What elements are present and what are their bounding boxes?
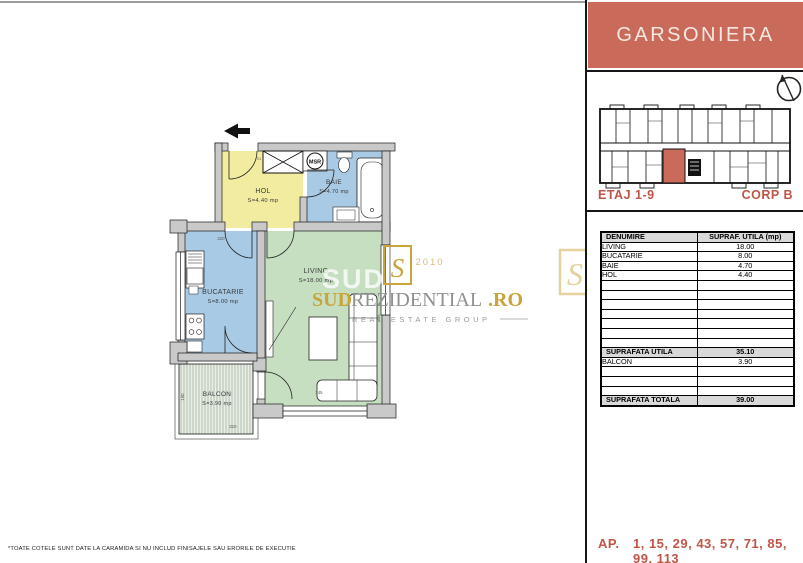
row-bucatarie-name: BUCATARIE: [601, 252, 697, 262]
entrance-arrow-icon: [224, 124, 250, 139]
col-header-denumire: DENUMIRE: [601, 232, 697, 242]
row-hol-value: 4.40: [697, 271, 794, 281]
boiler: [187, 341, 202, 352]
dim-shaft: 21: [257, 157, 261, 161]
balcon-area: S=3.90 mp: [202, 401, 231, 407]
watermark-year: 2010: [415, 257, 444, 268]
floor-label: ETAJ 1-9: [598, 188, 655, 202]
bucatarie-area: S=8.00 mp: [208, 299, 239, 305]
empty-row: [601, 367, 794, 377]
rule-under-title: [585, 70, 803, 72]
table-header-row: DENUMIRE SUPRAF. UTILA (mp): [601, 232, 794, 242]
row-baie-name: BAIE: [601, 261, 697, 271]
empty-row: [601, 300, 794, 310]
table-row: LIVING 18.00: [601, 242, 794, 252]
compass-icon: [772, 70, 803, 104]
footnote: *TOATE COTELE SUNT DATE LA CARAMIDA SI N…: [8, 546, 296, 552]
subtotal-value: 35.10: [697, 348, 794, 358]
dim-living-width: 345: [315, 390, 323, 395]
stairwell: [688, 159, 701, 176]
empty-row: [601, 290, 794, 300]
table-row: BUCATARIE 8.00: [601, 252, 794, 262]
dim-kitchen-width: 220: [217, 236, 225, 241]
dim-balcony-width: 210: [229, 424, 237, 429]
msr-label: MSR: [309, 160, 321, 166]
brand-tagline: REAL ESTATE GROUP: [352, 315, 491, 324]
empty-row: [601, 280, 794, 290]
row-bucatarie-value: 8.00: [697, 252, 794, 262]
corp-label: CORP B: [700, 188, 793, 202]
watermark-emblem-letter: S: [391, 253, 405, 283]
row-balcon-value: 3.90: [697, 357, 794, 367]
area-table: DENUMIRE SUPRAF. UTILA (mp) LIVING 18.00…: [600, 231, 795, 407]
row-baie-value: 4.70: [697, 261, 794, 271]
baie-label: BAIE: [326, 179, 342, 186]
row-balcon-name: BALCON: [601, 357, 697, 367]
row-living-name: LIVING: [601, 242, 697, 252]
toilet: [339, 158, 350, 173]
total-label: SUPRAFATA TOTALA: [601, 396, 697, 406]
table-row: HOL 4.40: [601, 271, 794, 281]
hol-label: HOL: [255, 188, 270, 195]
table-row: BAIE 4.70: [601, 261, 794, 271]
panel-divider: [585, 0, 587, 563]
watermark-emblem-2-letter: S: [567, 256, 583, 292]
floorplan-sheet: MSR 220 21 345 305 190 210 HOL S=4.40 mp…: [0, 0, 803, 563]
empty-row: [601, 376, 794, 386]
table-row: BALCON 3.90: [601, 357, 794, 367]
sofa-horizontal: [317, 380, 377, 401]
dim-balcony-height: 190: [180, 393, 185, 401]
brand-tld: .RO: [488, 289, 523, 311]
building-key-plan: [592, 101, 797, 193]
title-box: GARSONIERA: [588, 2, 803, 68]
floor-plan: MSR 220 21 345 305 190 210 HOL S=4.40 mp…: [0, 0, 585, 563]
highlighted-unit: [663, 149, 685, 183]
balcon-label: BALCON: [203, 391, 232, 398]
tv-unit: [266, 301, 273, 357]
page-title: GARSONIERA: [616, 24, 774, 47]
row-hol-name: HOL: [601, 271, 697, 281]
bucatarie-label: BUCATARIE: [202, 289, 244, 296]
subtotal-row: SUPRAFATA UTILA 35.10: [601, 348, 794, 358]
total-value: 39.00: [697, 396, 794, 406]
empty-row: [601, 309, 794, 319]
coffee-table: [309, 317, 337, 360]
subtotal-label: SUPRAFATA UTILA: [601, 348, 697, 358]
empty-row: [601, 386, 794, 396]
rule-under-keyplan: [585, 210, 803, 212]
stove: [186, 314, 204, 339]
col-header-suprafata: SUPRAF. UTILA (mp): [697, 232, 794, 242]
total-row: SUPRAFATA TOTALA 39.00: [601, 396, 794, 406]
empty-row: [601, 338, 794, 348]
brand-sud: SUD: [312, 289, 352, 311]
hol-area: S=4.40 mp: [248, 198, 279, 204]
empty-row: [601, 319, 794, 329]
row-living-value: 18.00: [697, 242, 794, 252]
balcon-room: [179, 364, 253, 434]
baie-area: S=4.70 mp: [319, 189, 348, 195]
ap-numbers: 1, 15, 29, 43, 57, 71, 85, 99, 113: [633, 536, 803, 563]
brand-rezidential: REZIDENTIAL: [351, 289, 482, 311]
ap-label: AP.: [598, 536, 620, 551]
toilet-tank: [337, 152, 352, 158]
empty-row: [601, 328, 794, 338]
